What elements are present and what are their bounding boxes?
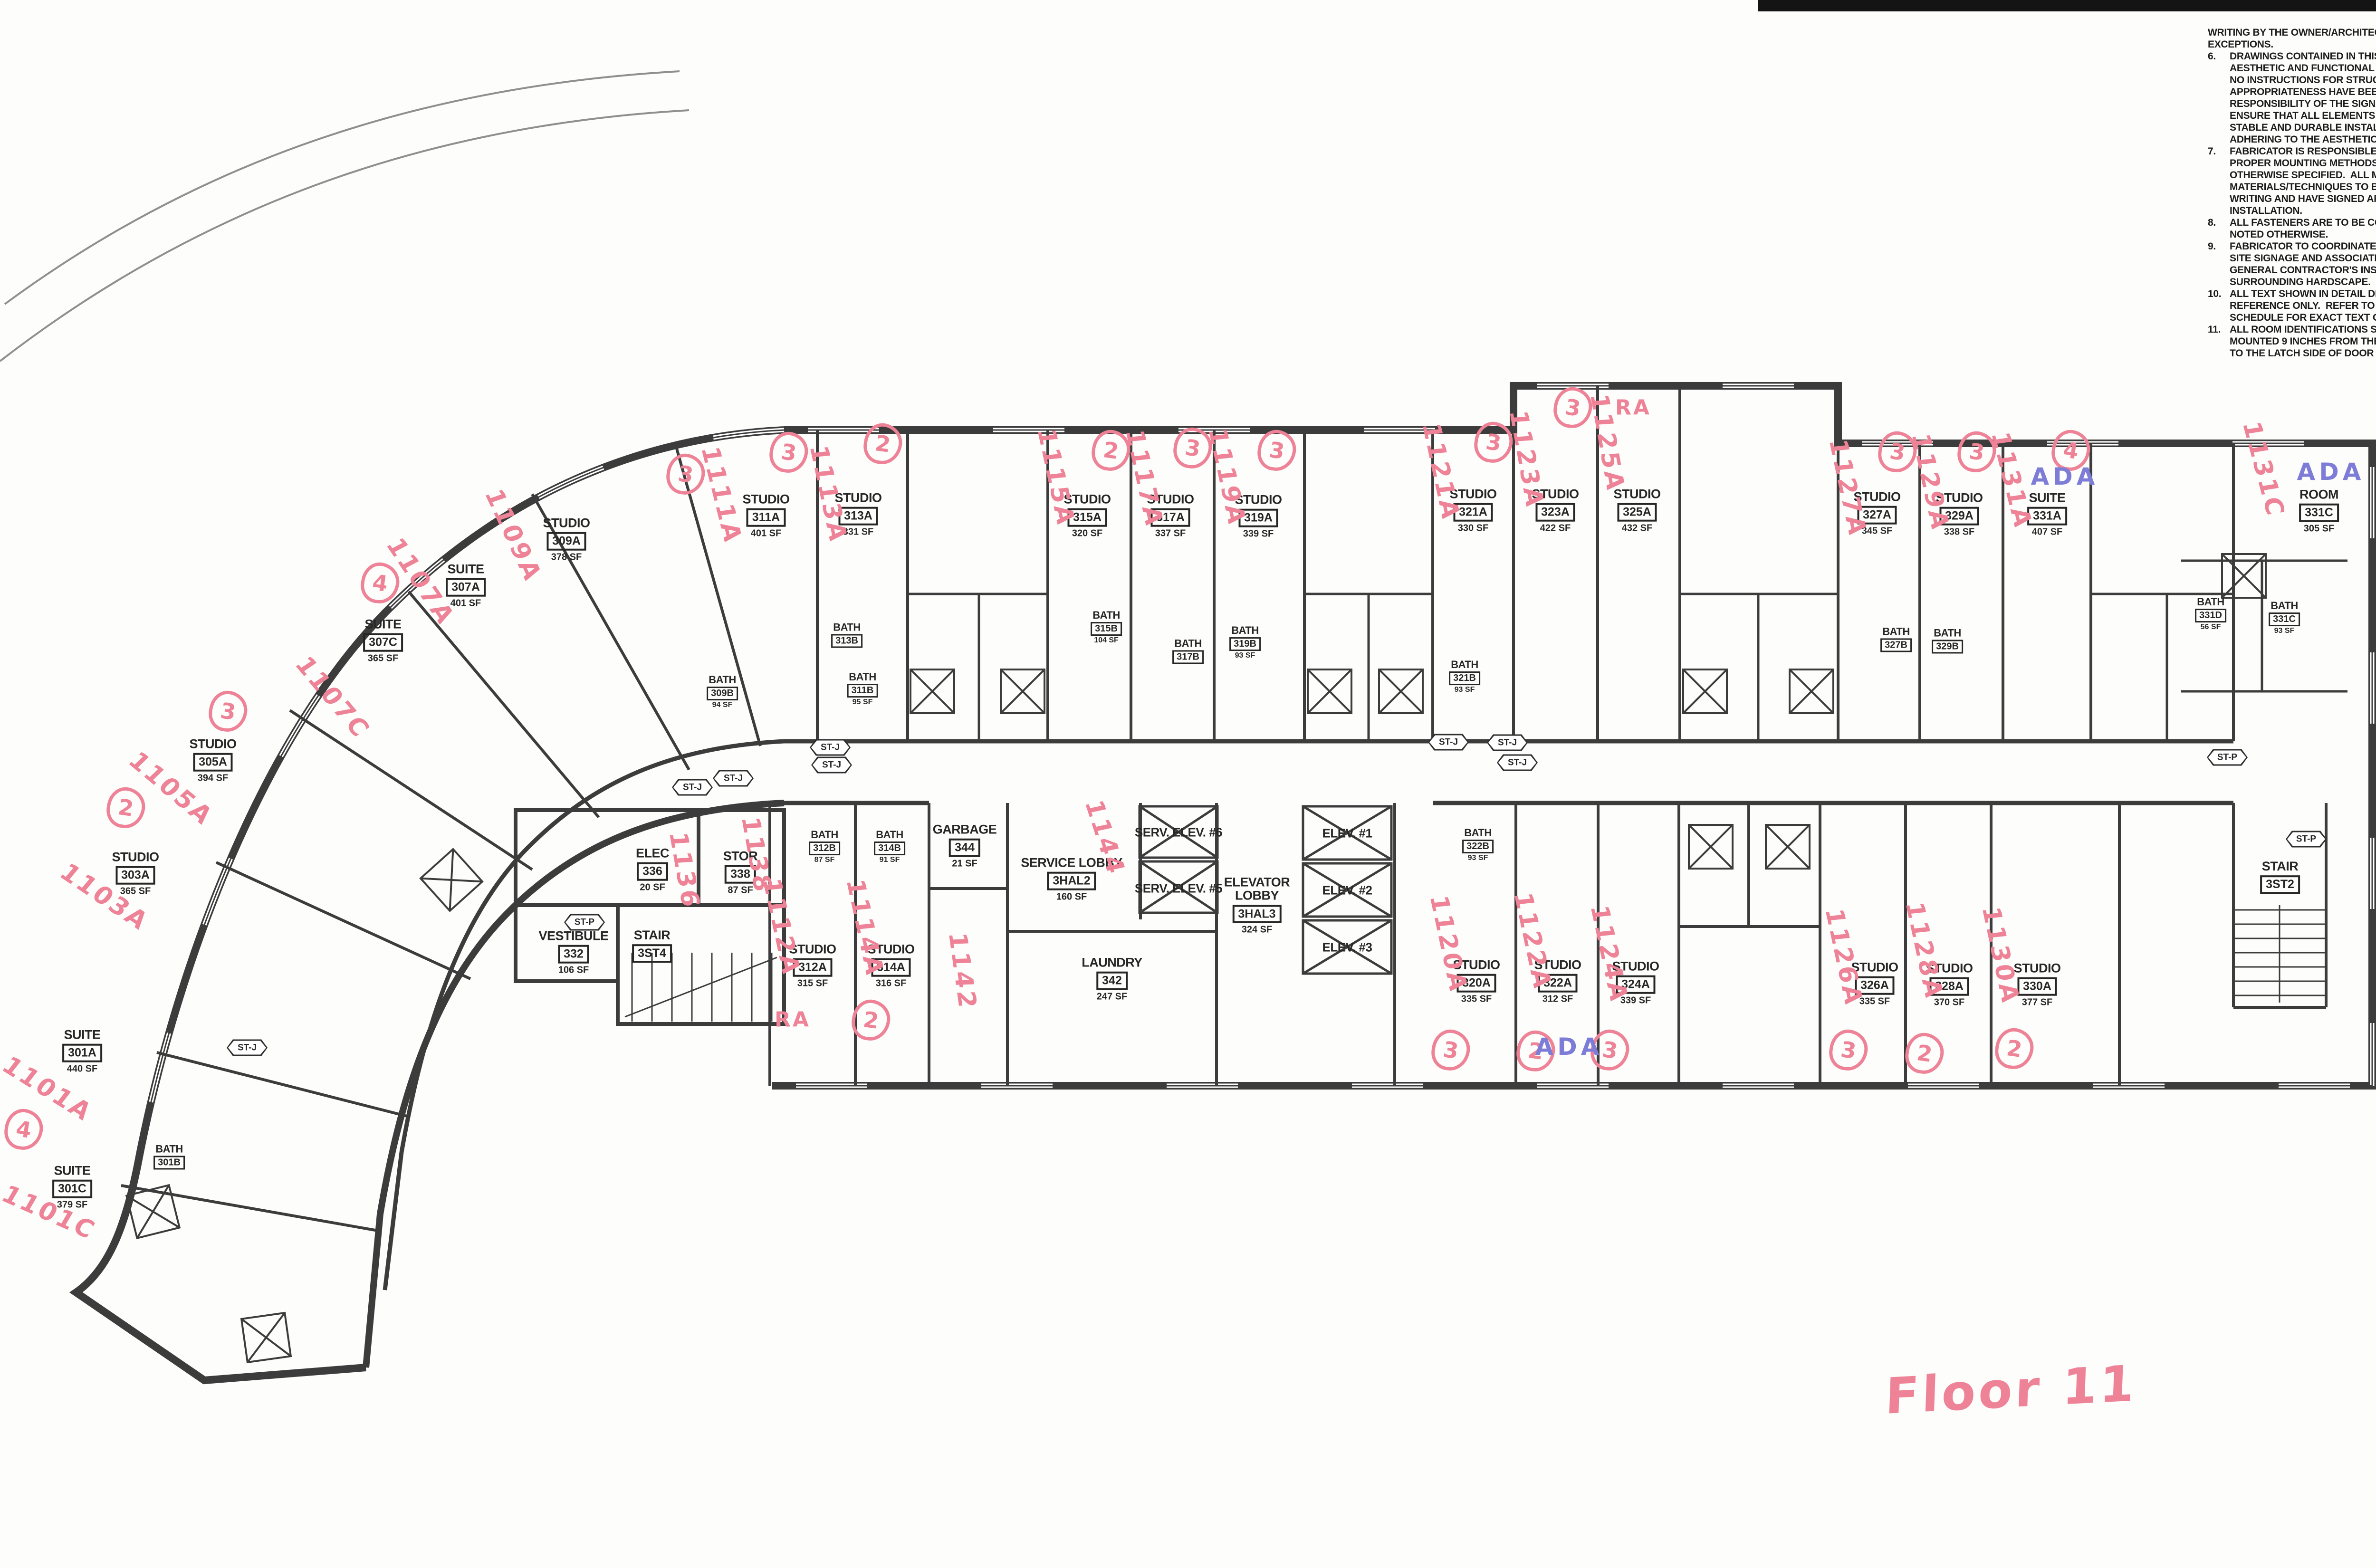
- corridor-tag-ST-J: ST-J: [810, 739, 851, 756]
- room-label-321B: BATH321B93 SF: [1449, 659, 1480, 694]
- room-label-311A: STUDIO311A401 SF: [742, 493, 789, 539]
- corridor-tag-ST-P: ST-P: [564, 914, 605, 931]
- hand-room-number-1107C: 1107C: [289, 652, 376, 744]
- hand-room-number-1136: 1136: [663, 831, 706, 910]
- room-label-309B: BATH309B94 SF: [707, 674, 738, 709]
- occupancy-circle: 4: [2, 1107, 45, 1152]
- corridor-tag-ST-J: ST-J: [1497, 755, 1538, 771]
- occupancy-circle: 2: [861, 421, 904, 467]
- hand-room-number-1111A: 1111A: [695, 445, 748, 545]
- notes-intro: WRITING BY THE OWNER/ARCHITECT. NO EXCEP…: [2208, 27, 2376, 50]
- hand-room-number-1115A: 1115A: [1031, 427, 1081, 528]
- hand-room-number-1127A: 1127A: [1823, 438, 1872, 538]
- corridor-tag-ST-P: ST-P: [2207, 749, 2248, 766]
- elevator-label: SERV. ELEV. #5: [1135, 881, 1222, 896]
- room-label-329B: BATH329B: [1932, 627, 1963, 653]
- room-label-332: VESTIBULE332106 SF: [538, 929, 608, 975]
- room-label-319B: BATH319B93 SF: [1229, 625, 1261, 660]
- room-label-314B: BATH314B91 SF: [874, 829, 905, 864]
- notes-block: WRITING BY THE OWNER/ARCHITECT. NO EXCEP…: [2208, 27, 2376, 359]
- notes-item: 6.DRAWINGS CONTAINED IN THIS PACKAGE AR …: [2208, 50, 2376, 145]
- room-label-305A: STUDIO305A394 SF: [189, 737, 236, 784]
- room-label-331D: BATH331D56 SF: [2195, 596, 2226, 631]
- corridor-tag-ST-J: ST-J: [1487, 735, 1528, 751]
- corridor-tag-ST-J: ST-J: [1428, 734, 1469, 751]
- room-label-3ST2: STAIR3ST2: [2260, 860, 2300, 894]
- room-label-315B: BATH315B104 SF: [1091, 610, 1122, 645]
- occupancy-circle: 3: [1827, 1027, 1870, 1073]
- hand-room-number-1124A: 1124A: [1584, 904, 1634, 1004]
- room-label-3ST4: STAIR3ST4: [632, 928, 672, 963]
- occupancy-circle: 3: [1551, 385, 1594, 430]
- hand-room-number-1142: 1142: [942, 932, 982, 1010]
- room-label-322B: BATH322B93 SF: [1462, 827, 1494, 862]
- corridor-tag-ST-J: ST-J: [227, 1040, 268, 1056]
- notes-items: 6.DRAWINGS CONTAINED IN THIS PACKAGE AR …: [2208, 50, 2376, 359]
- corridor-tag-ST-J: ST-J: [713, 770, 754, 787]
- room-label-331C: ROOM331C305 SF: [2299, 488, 2339, 534]
- hand-room-number-1131C: 1131C: [2236, 420, 2290, 519]
- elevator-label: ELEV. #3: [1322, 940, 1372, 955]
- occupancy-circle: 2: [849, 997, 892, 1043]
- room-label-344: GARBAGE34421 SF: [933, 823, 997, 869]
- room-label-307C: SUITE307C365 SF: [363, 618, 403, 664]
- room-label-336: ELEC33620 SF: [636, 847, 669, 893]
- room-label-301B: BATH301B: [153, 1143, 185, 1169]
- elevator-label: SERV. ELEV. #6: [1135, 825, 1222, 840]
- ada-annotation: ADA: [2297, 458, 2365, 486]
- notes-item: 11.ALL ROOM IDENTIFICATIONS SIGNS ARE TO…: [2208, 324, 2376, 359]
- room-label-327B: BATH327B: [1880, 626, 1912, 652]
- room-label-325A: STUDIO325A432 SF: [1613, 488, 1660, 534]
- occupancy-circle: 2: [1993, 1026, 2036, 1071]
- room-label-309A: STUDIO309A378 SF: [543, 516, 590, 563]
- ada-annotation: ADA: [2031, 463, 2099, 490]
- notes-item: 9.FABRICATOR TO COORDINATE THE INSTALLAT…: [2208, 240, 2376, 288]
- elevator-label: ELEV. #1: [1322, 826, 1372, 841]
- hand-room-number-1130A: 1130A: [1976, 905, 2025, 1006]
- hand-room-number-1109A: 1109A: [479, 486, 548, 585]
- labels-overlay: SUITE301A440 SFSUITE301C379 SFSTUDIO303A…: [0, 0, 2376, 1568]
- hand-room-number-1123A: 1123A: [1504, 409, 1550, 509]
- room-label-312B: BATH312B87 SF: [809, 829, 840, 864]
- hand-room-number-1121A: 1121A: [1416, 421, 1466, 522]
- room-label-3HAL3: ELEVATOR LOBBY3HAL3324 SF: [1224, 876, 1290, 935]
- occupancy-circle: 2: [104, 785, 147, 831]
- room-label-301A: SUITE301A440 SF: [62, 1028, 102, 1074]
- corridor-tag-ST-J: ST-J: [811, 757, 852, 774]
- room-label-311B: BATH311B95 SF: [847, 671, 878, 707]
- hand-room-number-1122A: 1122A: [1508, 891, 1557, 992]
- occupancy-circle: 3: [1429, 1027, 1472, 1073]
- room-label-342: LAUNDRY342247 SF: [1082, 956, 1142, 1002]
- room-label-313B: BATH313B: [831, 621, 862, 648]
- hand-room-number-1120A: 1120A: [1424, 894, 1473, 994]
- ada-annotation: ADA: [1535, 1033, 1603, 1061]
- hand-room-number-1126A: 1126A: [1819, 907, 1868, 1008]
- room-label-317B: BATH317B: [1172, 638, 1204, 664]
- notes-item: 8.ALL FASTENERS ARE TO BE CONCEALED UNLE…: [2208, 217, 2376, 240]
- occupancy-circle: 3: [1255, 428, 1298, 473]
- notes-item: 10.ALL TEXT SHOWN IN DETAIL DRAWINGS IS …: [2208, 288, 2376, 324]
- corridor-tag-ST-P: ST-P: [2286, 831, 2327, 848]
- occupancy-circle: 3: [206, 688, 249, 734]
- room-label-331C: BATH331C93 SF: [2269, 600, 2300, 635]
- hand-room-number-1114A: 1114A: [840, 878, 890, 978]
- occupancy-circle: 2: [1903, 1031, 1946, 1076]
- elevator-label: ELEV. #2: [1322, 883, 1372, 898]
- notes-item: 7.FABRICATOR IS RESPONSIBLE FOR DETERMIN…: [2208, 145, 2376, 217]
- ra-annotation: RA: [775, 1008, 811, 1032]
- room-label-307A: SUITE307A401 SF: [446, 563, 486, 609]
- hand-room-number-1128A: 1128A: [1899, 900, 1949, 1001]
- occupancy-circle: 3: [767, 430, 810, 475]
- ra-annotation: RA: [1615, 396, 1651, 420]
- corridor-tag-ST-J: ST-J: [672, 779, 713, 796]
